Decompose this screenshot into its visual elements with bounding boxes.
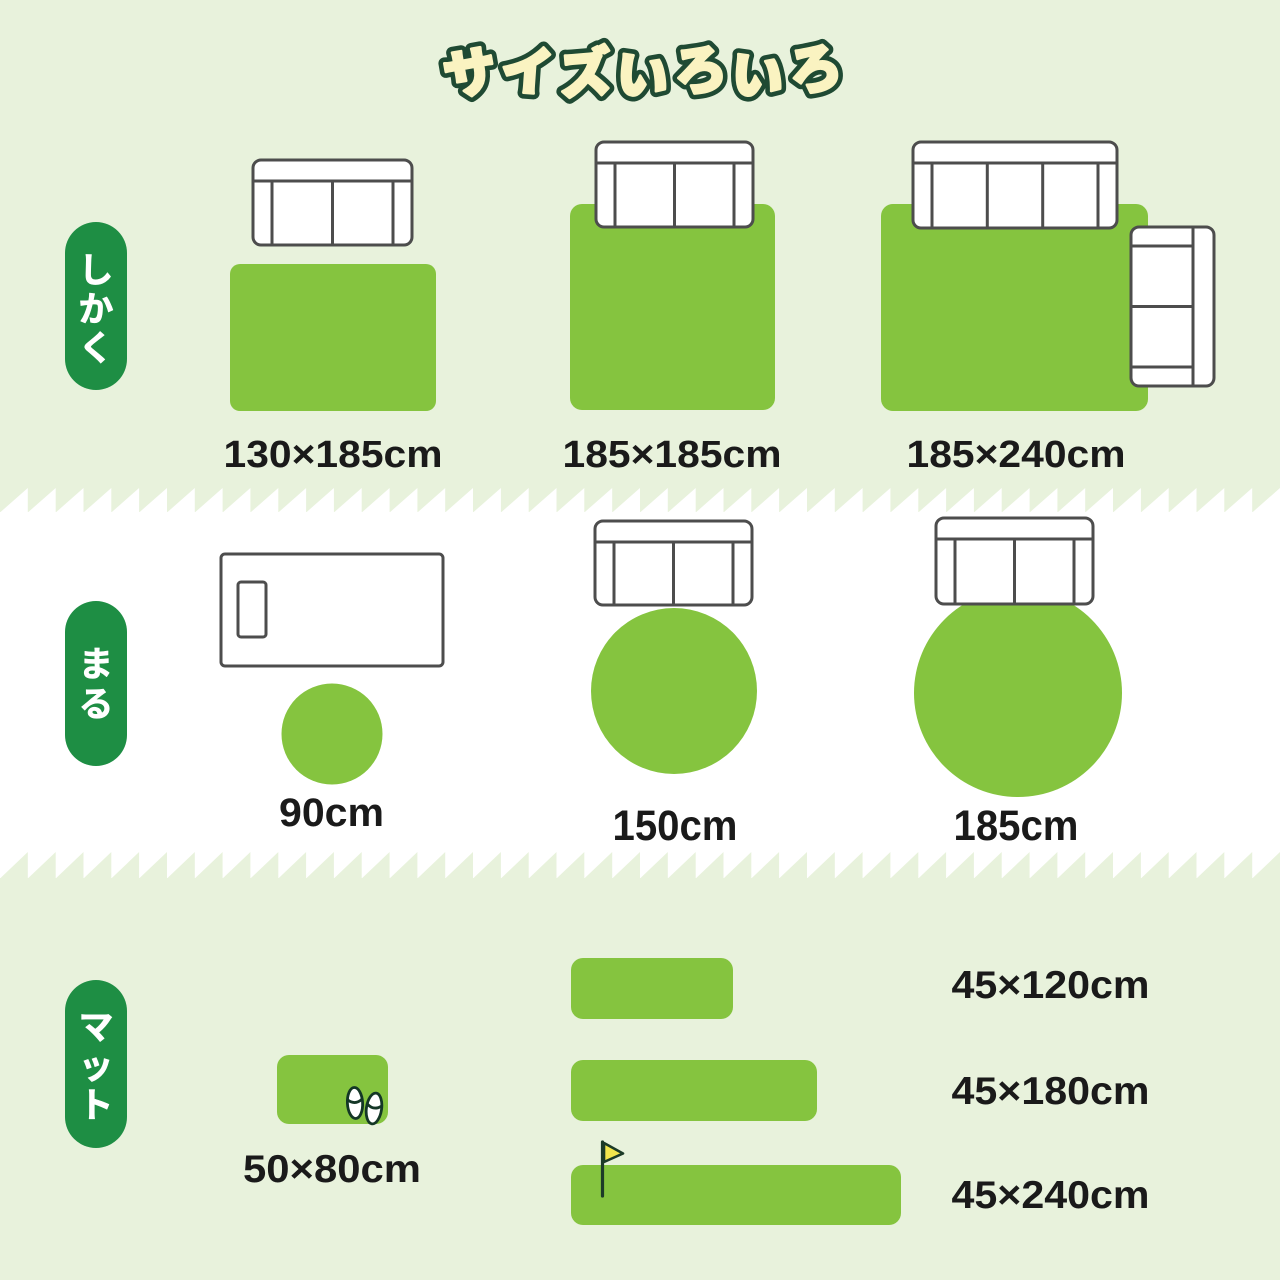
svg-text:185cm: 185cm: [954, 802, 1079, 850]
svg-text:45×240cm: 45×240cm: [952, 1174, 1150, 1217]
svg-text:130×185cm: 130×185cm: [224, 434, 443, 476]
svg-text:45×120cm: 45×120cm: [952, 964, 1150, 1007]
svg-text:45×180cm: 45×180cm: [952, 1070, 1150, 1113]
svg-text:50×80cm: 50×80cm: [243, 1148, 421, 1191]
svg-text:185×185cm: 185×185cm: [563, 434, 782, 476]
svg-text:185×240cm: 185×240cm: [907, 434, 1126, 476]
svg-text:90cm: 90cm: [279, 791, 384, 835]
svg-text:150cm: 150cm: [613, 802, 738, 850]
